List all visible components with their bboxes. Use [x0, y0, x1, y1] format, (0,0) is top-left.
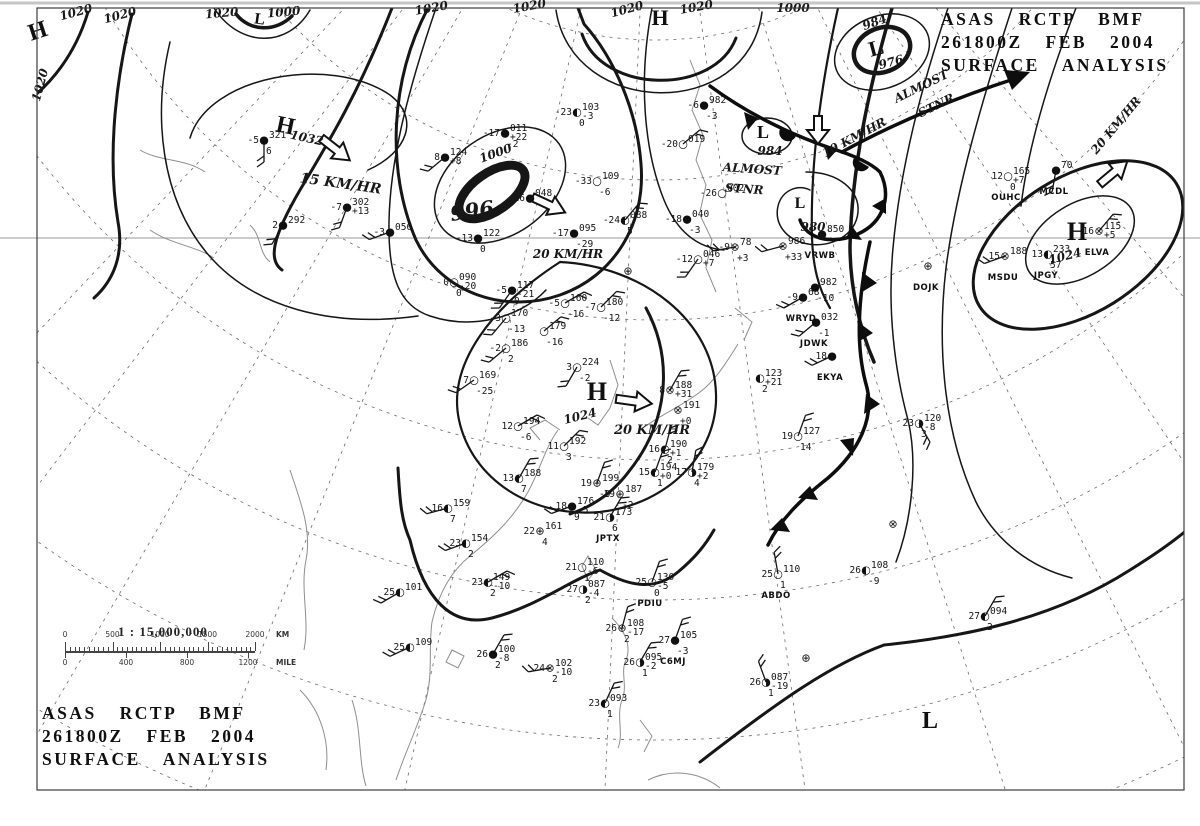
station-temperature: 25 [384, 587, 395, 598]
station-symbol-icon: ◑ [635, 656, 645, 669]
station-temperature: 26 [606, 623, 618, 634]
station-symbol-icon: ○ [1003, 170, 1013, 183]
station-temperature: 16 [1083, 226, 1095, 237]
station-symbol-icon: ⊕ [623, 265, 632, 278]
valid-time: 261800Z FEB 2004 [42, 725, 270, 748]
scale-minor-tick [255, 647, 256, 651]
station-plot: ◐161597 [420, 498, 470, 525]
station-plot: ●27105-3C6MJ [659, 615, 698, 667]
station-symbol-icon: ⊕ [535, 525, 544, 538]
station-plot: ◐230931 [589, 679, 628, 720]
station-symbol-icon: ◐ [405, 641, 415, 654]
isobar-label: 1032 [289, 128, 325, 149]
station-symbol-icon: ● [385, 226, 395, 239]
station-temperature: 0 [443, 277, 449, 288]
station-temperature: -23 [555, 107, 572, 118]
station-plot: ●-17095-29 [552, 223, 596, 250]
station-pressure: 048 [535, 188, 552, 199]
station-symbol-icon: ⊗ [545, 662, 554, 675]
station-pressure: 032 [821, 312, 838, 323]
station-dewpoint: 5 [627, 226, 633, 237]
station-symbol-icon: ○ [572, 361, 582, 374]
isobar-label: 1020 [204, 5, 239, 22]
station-temperature: 25 [636, 577, 647, 588]
station-symbol-icon: ○ [592, 175, 602, 188]
station-symbol-icon: ◐ [1043, 248, 1053, 261]
station-pressure: 127 [803, 426, 820, 437]
station-plot: ○25130-50PDIU [636, 557, 675, 609]
station-plot: ○111923 [548, 427, 588, 463]
station-symbol-icon: ◐ [443, 502, 453, 515]
station-pressure: 109 [415, 637, 432, 648]
station-dewpoint: 57 [1050, 260, 1061, 271]
station-pressure: 088 [630, 210, 647, 221]
station-symbol-icon: ◐ [755, 372, 765, 385]
station-temperature: 23 [450, 538, 461, 549]
station-symbol-icon: ○ [501, 342, 511, 355]
station-dewpoint: 4 [542, 537, 548, 548]
station-plot: ◑23120-83 [903, 413, 942, 450]
chart-type: SURFACE ANALYSIS [941, 54, 1169, 77]
station-pressure: 040 [692, 209, 709, 220]
station-dewpoint: 4 [694, 478, 700, 489]
station-dewpoint: 2 [987, 622, 993, 633]
station-pressure: 68 [808, 287, 820, 298]
station-temperature: -7 [331, 202, 342, 213]
station-pressure: 179 [549, 321, 566, 332]
station-id: EKYA [817, 373, 843, 383]
station-dewpoint: -2 [579, 373, 590, 384]
station-temperature: 21 [566, 562, 578, 573]
station-temperature: 25 [394, 642, 405, 653]
station-pressure: 199 [602, 473, 619, 484]
station-dewpoint: 1 [607, 709, 613, 720]
station-symbol-icon: ◑ [578, 583, 588, 596]
station-dewpoint: 2 [490, 588, 496, 599]
pressure-center-l: L [795, 195, 806, 212]
station-symbol-icon: ● [507, 284, 517, 297]
station-temperature: 2 [272, 220, 278, 231]
station-temperature: 23 [903, 418, 914, 429]
station-symbol-icon: ◐ [461, 537, 471, 550]
pressure-center-l: L [253, 10, 266, 28]
station-symbol-icon: ◐ [572, 106, 582, 119]
station-pressure: 154 [471, 533, 488, 544]
station-plot: ⊕DOJK [913, 260, 939, 294]
station-plot: ◐270942 [969, 593, 1008, 633]
station-symbol-icon: ⊗ [665, 384, 674, 397]
station-plot: ◐23149-102 [472, 569, 515, 600]
product-id: ASAS RCTP BMF [42, 702, 270, 725]
station-temperature: 27 [567, 584, 578, 595]
station-dewpoint: -3 [706, 111, 717, 122]
station-temperature: 21 [594, 512, 606, 523]
station-pressure: 850 [827, 224, 844, 235]
station-temperature: 15 [989, 251, 1000, 262]
station-temperature: 17 [676, 467, 687, 478]
station-pressure: 321 [269, 130, 286, 141]
station-plot: ⊗16115+5ELVA [1083, 210, 1122, 258]
station-temperature: 25 [762, 569, 773, 580]
station-dewpoint: -9 [868, 576, 880, 587]
station-symbol-icon: ⊗ [1094, 225, 1103, 238]
station-plot: ●-6982-3 [688, 95, 727, 122]
scale-km-label: 0 [63, 630, 68, 639]
station-plot: ○1912714 [782, 411, 821, 453]
scale-km-label: 1000 [150, 630, 169, 639]
station-symbol-icon: ○ [469, 374, 479, 387]
station-pressure: 180 [606, 297, 623, 308]
station-dewpoint: +33 [785, 252, 802, 263]
station-pressure: 224 [582, 357, 599, 368]
station-plot: ◐123+212 [755, 368, 782, 395]
surface-analysis-chart: HHLHLLLHHL102010201020100010201020102010… [0, 0, 1200, 826]
station-plot: ○-21862 [481, 338, 529, 365]
station-dewpoint: 0 [579, 118, 585, 129]
station-dewpoint: 1 [657, 478, 663, 489]
station-plot: ●-18040-3 [665, 209, 710, 236]
station-plot: ⊗15188MSDU [977, 246, 1027, 283]
station-temperature: 8 [434, 152, 440, 163]
station-dewpoint: -29 [576, 239, 593, 250]
station-dewpoint: 0 [654, 588, 660, 599]
station-dewpoint: 0 [456, 288, 462, 299]
station-temperature: 23 [589, 698, 600, 709]
chart-type: SURFACE ANALYSIS [42, 748, 270, 771]
station-pressure: 159 [453, 498, 470, 509]
station-symbol-icon: ○ [449, 276, 459, 289]
station-pressure: 122 [483, 228, 500, 239]
station-symbol-icon: ⊕ [801, 652, 810, 665]
scale-mile-label: 800 [180, 658, 194, 667]
motion-label: 10 KM/HR [820, 115, 889, 160]
station-plot: ⊗986+33 [755, 236, 805, 263]
station-temperature: -5 [549, 298, 560, 309]
station-pressure: 188 [1010, 246, 1027, 257]
pressure-center-h: H [25, 16, 51, 47]
station-symbol-icon: ○ [559, 440, 569, 453]
station-pressure: 170 [511, 308, 528, 319]
station-pressure: 191 [683, 400, 700, 411]
station-dewpoint: +0 [680, 416, 692, 427]
station-pressure: 101 [405, 582, 422, 593]
station-dewpoint: -25 [476, 386, 493, 397]
station-temperature: 26 [624, 657, 636, 668]
station-plot: ◐25101 [373, 582, 422, 606]
station-symbol-icon: ◐ [861, 564, 871, 577]
scale-mile-label: 0 [63, 658, 68, 667]
station-symbol-icon: ◑ [687, 466, 697, 479]
station-pressure: 161 [545, 521, 562, 532]
station-id: C6MJ [660, 657, 686, 667]
station-symbol-icon: ○ [717, 187, 727, 200]
station-temperature: 11 [548, 441, 560, 452]
station-tendency: +13 [352, 206, 369, 217]
title-block-top-right: ASAS RCTP BMF 261800Z FEB 2004 SURFACE A… [941, 8, 1169, 77]
station-pressure: 109 [602, 171, 619, 182]
station-dewpoint: 9 [574, 512, 580, 523]
station-temperature: -7 [585, 302, 596, 313]
station-pressure: 982 [820, 277, 837, 288]
station-plot: ◐131887 [503, 455, 542, 495]
station-dewpoint: -6 [599, 187, 611, 198]
station-id: JDWK [799, 339, 828, 349]
station-dewpoint: 1 [642, 668, 648, 679]
scale-km-label: 500 [105, 630, 119, 639]
station-plot: ◐-23103-30 [555, 102, 599, 129]
station-dewpoint: -6 [520, 432, 532, 443]
station-dewpoint: -1 [818, 328, 830, 339]
station-pressure: 192 [569, 436, 586, 447]
station-temperature: -9 [719, 242, 731, 253]
station-pressure: 194 [523, 416, 540, 427]
station-plot: ◑26087-191 [750, 654, 789, 699]
station-id: DOJK [913, 283, 939, 293]
station-pressure: 169 [479, 370, 496, 381]
station-temperature: 18 [556, 501, 568, 512]
station-temperature: 23 [472, 577, 483, 588]
station-dewpoint: 6 [266, 146, 272, 157]
station-temperature: 12 [992, 171, 1003, 182]
station-dewpoint: 2 [552, 674, 558, 685]
valid-time: 261800Z FEB 2004 [941, 31, 1169, 54]
station-temperature: -6 [688, 100, 700, 111]
station-temperature: 8 [659, 385, 665, 396]
station-symbol-icon: ● [488, 648, 498, 661]
station-temperature: 18 [816, 351, 828, 362]
station-symbol-icon: ◐ [483, 576, 493, 589]
station-plot: ●18EKYA [805, 350, 844, 384]
station-dewpoint: 0 [1010, 182, 1016, 193]
pressure-center-l: L [922, 708, 938, 734]
station-temperature: 19 [782, 431, 794, 442]
station-plot: ●8124+8 [420, 147, 468, 174]
station-plot: ◐-240885 [603, 199, 648, 237]
station-dewpoint: 2 [624, 634, 630, 645]
station-dewpoint: 14 [800, 442, 812, 453]
station-temperature: 22 [524, 526, 535, 537]
station-plot: ○-12046+7 [676, 249, 721, 281]
station-symbol-icon: ◐ [650, 466, 660, 479]
station-symbol-icon: ● [567, 500, 577, 513]
isobar-label: 1020 [414, 0, 450, 18]
station-symbol-icon: ◐ [620, 214, 630, 227]
pressure-center-h: H [651, 5, 668, 30]
isobar-label: 1024 [562, 405, 598, 427]
station-symbol-icon: ⊕ [592, 477, 601, 490]
scale-mile-label: 400 [119, 658, 133, 667]
station-tendency: +31 [675, 389, 692, 400]
station-temperature: -5 [496, 285, 507, 296]
station-dewpoint: -16 [567, 309, 584, 320]
station-temperature: -3 [490, 313, 501, 324]
station-plot: ⊗ [888, 518, 897, 531]
station-symbol-icon: ● [500, 127, 510, 140]
station-pressure: 986 [788, 236, 805, 247]
motion-label: 15 KM/HR [299, 170, 382, 197]
station-dewpoint: 0 [480, 244, 486, 255]
station-temperature: 13 [503, 473, 514, 484]
station-plot: ◑27087-42 [567, 579, 606, 606]
scale-km-label: 2000 [245, 630, 264, 639]
station-symbol-icon: ⊗ [1000, 250, 1009, 263]
station-symbol-icon: ● [817, 228, 827, 241]
station-symbol-icon: ○ [501, 312, 511, 325]
station-id: JPTX [595, 534, 620, 544]
station-temperature: 24 [534, 663, 546, 674]
station-symbol-icon: ○ [539, 325, 549, 338]
station-plot: ○0090-200 [443, 272, 476, 299]
station-id: VRWB [805, 251, 836, 261]
station-symbol-icon: ● [525, 192, 535, 205]
station-symbol-icon: ● [440, 151, 450, 164]
motion-label: ALMOST [721, 160, 783, 178]
station-symbol-icon: ● [569, 227, 579, 240]
station-temperature: 26 [850, 565, 862, 576]
scale-block: 1 : 15,000,000 0500100015002000040080012… [62, 622, 322, 678]
station-temperature: -17 [483, 128, 500, 139]
station-plot: ●26100-82 [477, 631, 516, 671]
station-dewpoint: 2 [468, 549, 474, 560]
station-plot: ◐25109 [383, 637, 433, 658]
station-symbol-icon: ● [342, 201, 352, 214]
station-temperature: 26 [750, 677, 762, 688]
station-temperature: 15 [639, 467, 650, 478]
scale-mile-unit: MILE [276, 658, 296, 667]
station-plot: ○179-16 [539, 314, 569, 348]
station-symbol-icon: ◑ [605, 511, 615, 524]
station-symbol-icon: ◑ [761, 676, 771, 689]
station-plot: ○251101ABDO [761, 546, 800, 601]
station-dewpoint: 2 [585, 595, 591, 606]
station-temperature: 19 [581, 478, 593, 489]
station-id: MSDU [988, 273, 1019, 283]
station-pressure: 095 [579, 223, 596, 234]
station-temperature: -3 [374, 227, 385, 238]
station-pressure: 110 [783, 564, 800, 575]
station-pressure: 292 [288, 215, 305, 226]
station-symbol-icon: ◑ [914, 417, 924, 430]
station-symbol-icon: ⊕ [923, 260, 932, 273]
station-dewpoint: 2 [508, 354, 514, 365]
pressure-center-l: L [757, 122, 769, 142]
station-plot: ●-7302+13 [331, 197, 370, 232]
station-dewpoint: -16 [546, 337, 563, 348]
station-temperature: 27 [969, 611, 980, 622]
station-pressure: 056 [395, 222, 412, 233]
station-symbol-icon: ○ [513, 420, 523, 433]
title-block-bottom-left: ASAS RCTP BMF 261800Z FEB 2004 SURFACE A… [42, 702, 270, 771]
station-plot: ○-3170-13 [483, 308, 528, 339]
station-dewpoint: 0 [514, 296, 520, 307]
station-pressure: 233 [1053, 244, 1070, 255]
station-pressure: 186 [511, 338, 528, 349]
station-symbol-icon: ○ [560, 297, 570, 310]
scale-bar-line [65, 651, 255, 653]
station-id: OUHC [991, 193, 1020, 203]
station-temperature: -24 [603, 215, 620, 226]
station-pressure: 094 [990, 606, 1007, 617]
station-temperature: -9 [787, 292, 799, 303]
station-dewpoint: 6 [612, 523, 618, 534]
station-dewpoint: 1 [780, 580, 786, 591]
station-symbol-icon: ● [827, 350, 837, 363]
station-temperature: 27 [659, 635, 670, 646]
station-symbol-icon: ● [811, 316, 821, 329]
station-temperature: 7 [463, 375, 469, 386]
station-plot: ⊕221614 [524, 521, 563, 548]
station-dewpoint: 2 [495, 660, 501, 671]
station-symbol-icon: ⊗ [730, 241, 739, 254]
station-temperature: -2 [490, 343, 501, 354]
station-dewpoint: 3 [566, 452, 572, 463]
station-dewpoint: -2 [507, 139, 518, 150]
scale-km-label: 1500 [198, 630, 217, 639]
movement-arrow [615, 389, 653, 414]
station-dewpoint: -3 [689, 225, 700, 236]
station-symbol-icon: ◐ [514, 472, 524, 485]
station-temperature: -33 [575, 176, 592, 187]
station-pressure: 019 [688, 134, 705, 145]
station-plot: ⊕ [623, 265, 632, 278]
station-dewpoint: +3 [737, 253, 748, 264]
meridian-line [655, 0, 1040, 826]
station-pressure: 188 [524, 468, 541, 479]
station-symbol-icon: ⊗ [888, 518, 897, 531]
station-symbol-icon: ● [682, 213, 692, 226]
station-id: ABDO [761, 591, 790, 601]
station-temperature: -20 [661, 139, 678, 150]
station-temperature: 19 [604, 489, 616, 500]
station-id: PDIU [637, 599, 662, 609]
station-plot: ○-7180-12 [585, 288, 625, 324]
station-symbol-icon: ● [699, 99, 709, 112]
station-temperature: 12 [502, 421, 513, 432]
station-symbol-icon: ⊗ [673, 404, 682, 417]
station-pressure: 108 [871, 560, 888, 571]
station-symbol-icon: ⊕ [617, 622, 626, 635]
station-symbol-icon: ◐ [600, 697, 610, 710]
station-pressure: 70 [1061, 160, 1073, 171]
station-dewpoint: 7 [521, 484, 527, 495]
station-dewpoint: -3 [677, 646, 688, 657]
product-id: ASAS RCTP BMF [941, 8, 1169, 31]
station-pressure: 105 [680, 630, 697, 641]
station-temperature: -12 [676, 254, 693, 265]
station-pressure: 187 [625, 484, 642, 495]
scale-mile-label: 1200 [238, 658, 257, 667]
isobar-label: 1000 [266, 4, 301, 21]
station-dewpoint: 3 [921, 429, 927, 440]
station-tendency: +7 [703, 258, 714, 269]
station-symbol-icon: ○ [773, 568, 783, 581]
station-pressure: 002 [727, 183, 744, 194]
station-symbol-icon: ● [1051, 164, 1061, 177]
isobar-label: 1020 [102, 4, 139, 26]
station-plot: ◐26108-9 [850, 560, 889, 587]
station-dewpoint: -13 [508, 324, 525, 335]
station-temperature: -5 [248, 135, 259, 146]
station-symbol-icon: ◐ [980, 610, 990, 623]
station-symbol-icon: ○ [678, 138, 688, 151]
isobar-label: 996 [449, 195, 496, 226]
station-id: JPGY [1033, 271, 1059, 281]
scale-bar: 050010001500200004008001200KMMILE [62, 622, 322, 678]
station-symbol-icon: ○ [647, 576, 657, 589]
station-dewpoint: 1 [768, 688, 774, 699]
station-pressure: 78 [740, 237, 752, 248]
station-temperature: -17 [552, 228, 569, 239]
